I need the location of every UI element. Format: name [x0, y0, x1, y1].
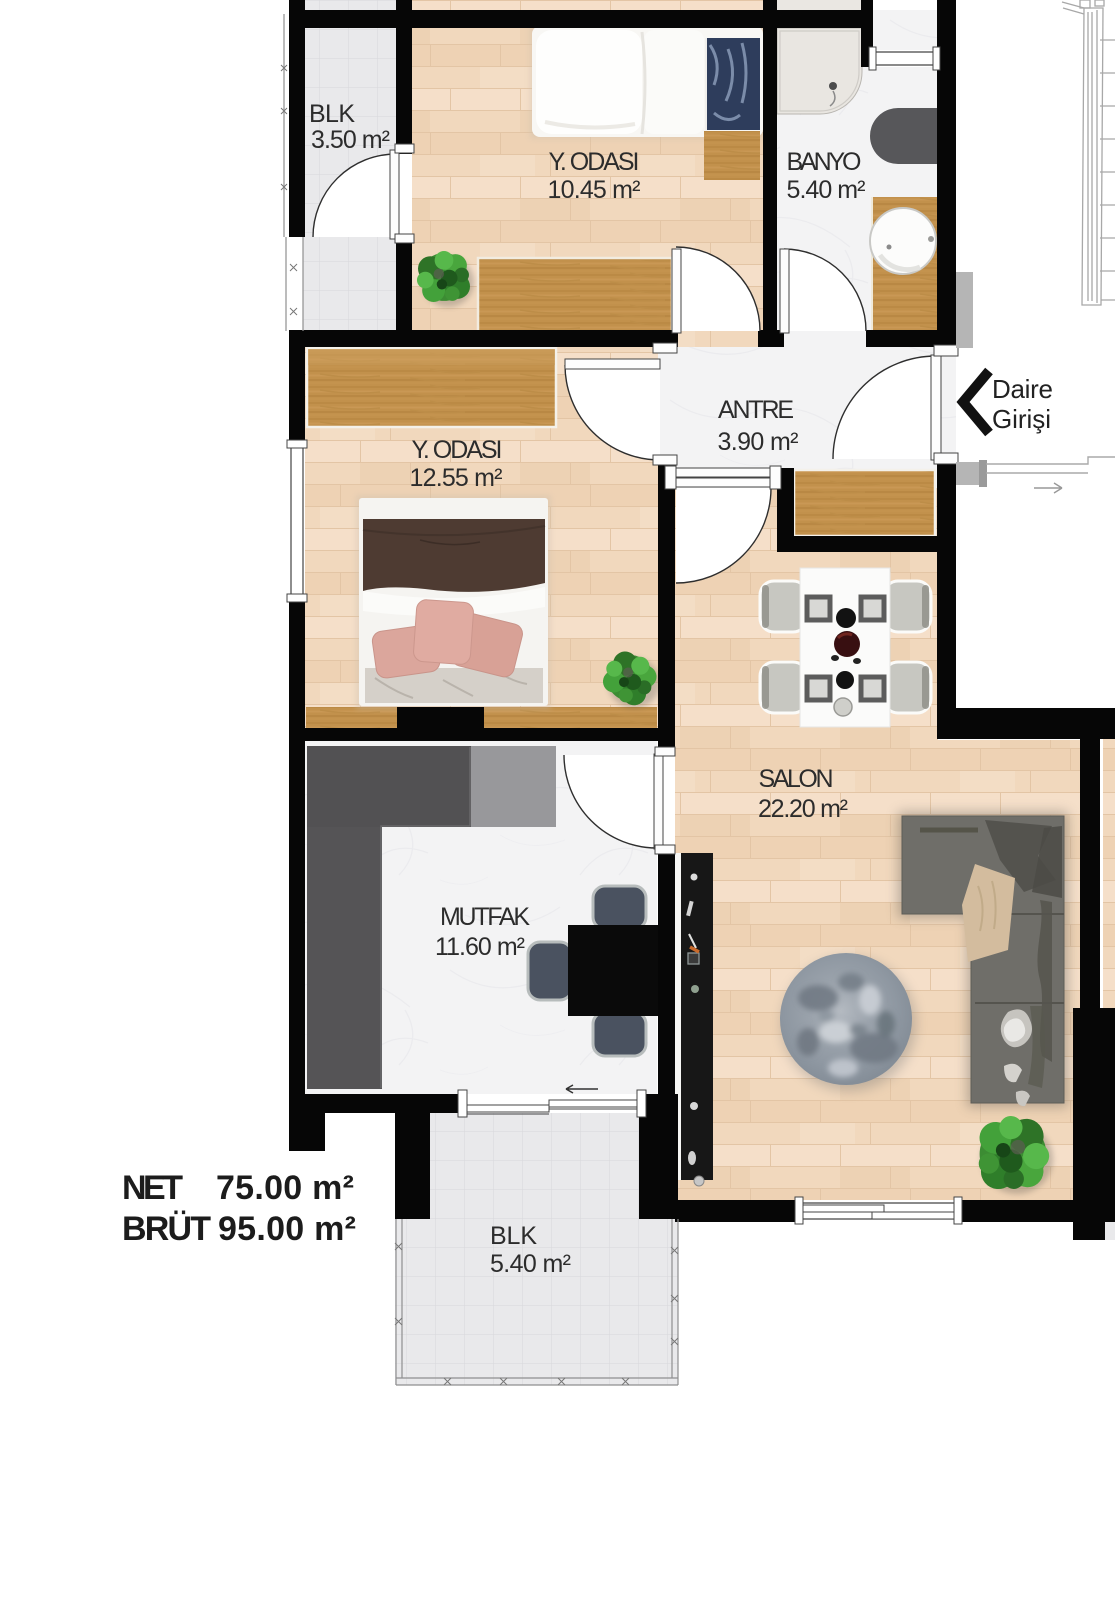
svg-text:10.45 m²: 10.45 m² [548, 176, 641, 204]
svg-text:SALON: SALON [759, 765, 834, 793]
svg-text:Girişi: Girişi [992, 404, 1051, 434]
svg-text:12.55 m²: 12.55 m² [410, 464, 503, 492]
svg-text:Y. ODASI: Y. ODASI [412, 436, 503, 464]
svg-text:NET: NET [122, 1169, 183, 1207]
svg-text:5.40 m²: 5.40 m² [787, 176, 866, 204]
svg-text:BLK: BLK [490, 1222, 537, 1250]
svg-text:Daire: Daire [992, 374, 1053, 404]
svg-text:95.00 m²: 95.00 m² [218, 1210, 356, 1248]
svg-text:ANTRE: ANTRE [718, 396, 794, 424]
svg-text:Y. ODASI: Y. ODASI [549, 148, 640, 176]
svg-text:BANYO: BANYO [787, 148, 862, 176]
svg-text:MUTFAK: MUTFAK [440, 903, 530, 931]
svg-text:BLK: BLK [309, 100, 355, 128]
svg-text:3.90 m²: 3.90 m² [718, 428, 799, 456]
svg-text:75.00 m²: 75.00 m² [216, 1169, 354, 1207]
svg-text:BRÜT: BRÜT [122, 1210, 211, 1248]
svg-text:3.50 m²: 3.50 m² [311, 126, 390, 154]
svg-text:11.60 m²: 11.60 m² [435, 933, 525, 961]
svg-text:22.20 m²: 22.20 m² [758, 795, 848, 823]
svg-text:5.40 m²: 5.40 m² [490, 1250, 571, 1278]
